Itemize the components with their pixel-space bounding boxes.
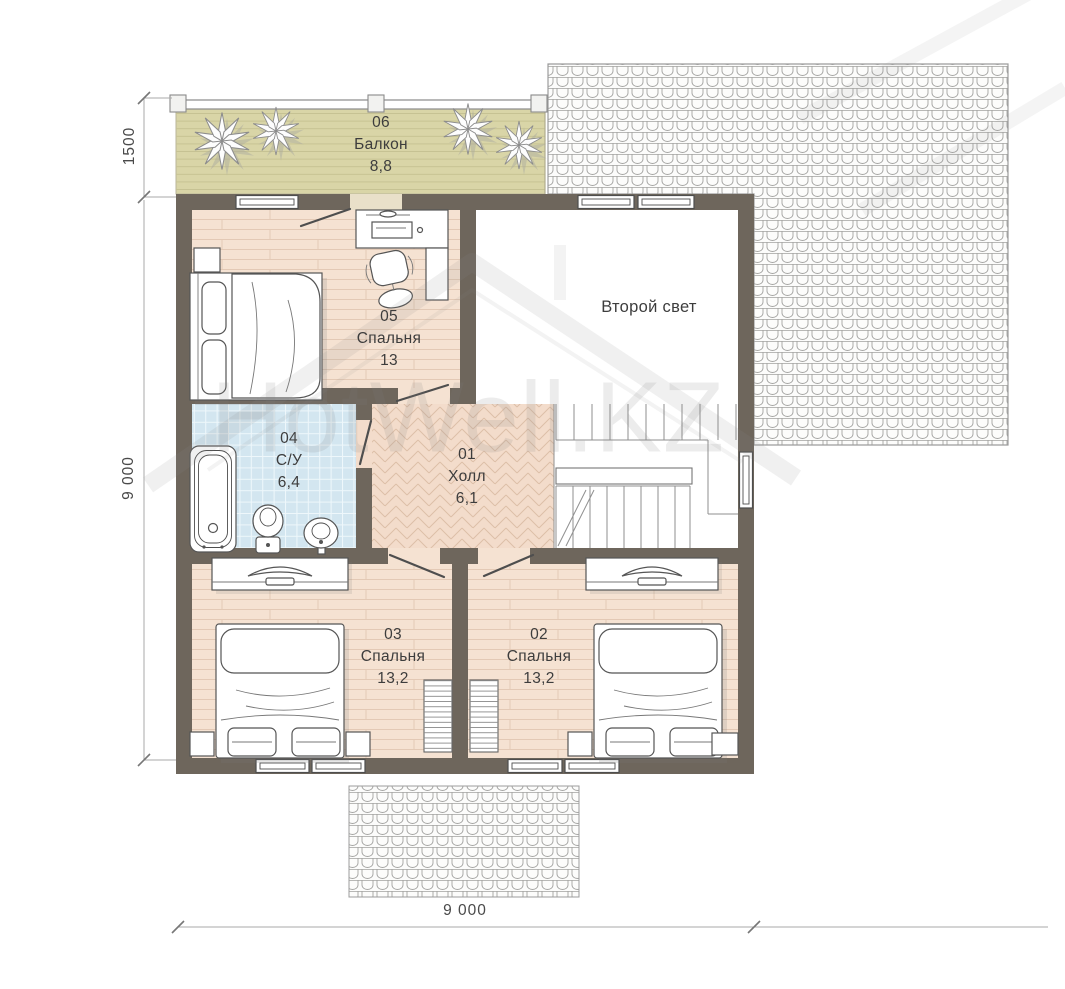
roof-hatch-bottom [349, 786, 579, 897]
dresser-icon [586, 558, 722, 594]
room-name: Спальня [357, 328, 421, 350]
room-area: 8,8 [354, 156, 408, 178]
dresser-icon [212, 558, 352, 594]
nightstand-icon [346, 732, 370, 756]
window-second-light-1 [578, 196, 634, 209]
room-area: 6,1 [448, 488, 486, 510]
room-label-balcony: 06 Балкон 8,8 [354, 112, 408, 178]
room-label-second-light: Второй свет [601, 296, 696, 318]
floor-plan-drawing: .pshadow{fill:#aaa9a0;opacity:.45;stroke… [0, 0, 1065, 989]
window-second-light-2 [638, 196, 694, 209]
room-name: Спальня [361, 646, 425, 668]
room-number: 05 [357, 306, 421, 328]
room-label-bedroom-02: 02 Спальня 13,2 [507, 624, 571, 690]
dimension-label-side: 9 000 [120, 456, 138, 500]
toilet-icon [253, 505, 283, 553]
room-area: 13,2 [361, 668, 425, 690]
room-number: 06 [354, 112, 408, 134]
bed-icon [216, 624, 349, 763]
balcony-railing [170, 95, 547, 112]
room-number: 03 [361, 624, 425, 646]
room-number: 02 [507, 624, 571, 646]
dimension-label-width: 9 000 [443, 902, 487, 920]
room-label-bedroom-03: 03 Спальня 13,2 [361, 624, 425, 690]
room-name: Второй свет [601, 296, 696, 318]
nightstand-icon [190, 732, 214, 756]
wardrobe-icon [470, 680, 498, 752]
watermark-text: HotWell.KZ [211, 361, 725, 476]
dimension-label-balcony-depth: 1500 [121, 127, 139, 165]
bed-icon [594, 624, 727, 763]
wardrobe-icon [424, 680, 452, 752]
nightstand-icon [194, 248, 220, 272]
floor-plan: .pshadow{fill:#aaa9a0;opacity:.45;stroke… [0, 0, 1065, 989]
window-bedroom-05 [236, 196, 298, 209]
nightstand-icon [712, 733, 738, 755]
room-name: Балкон [354, 134, 408, 156]
room-name: Спальня [507, 646, 571, 668]
room-area: 13,2 [507, 668, 571, 690]
nightstand-icon [568, 732, 592, 756]
